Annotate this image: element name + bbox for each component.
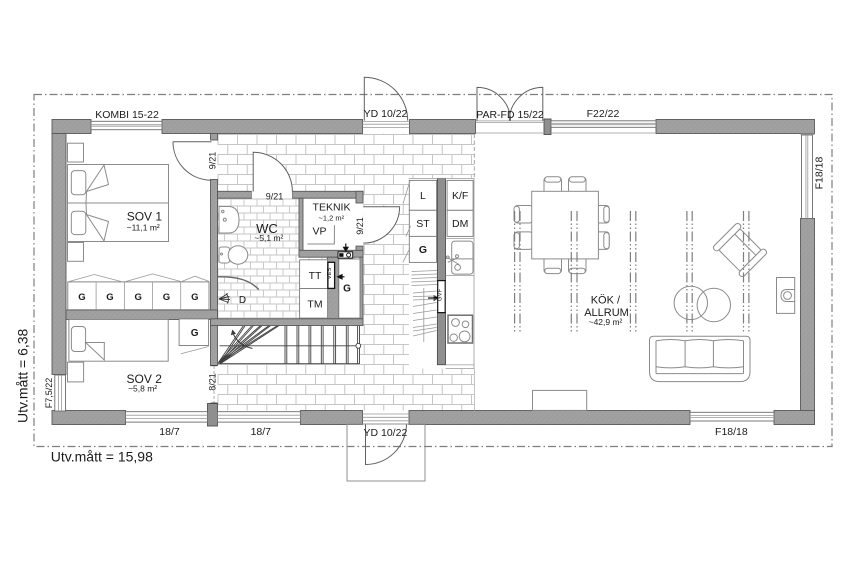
- svg-text:KOMBI 15-22: KOMBI 15-22: [95, 109, 159, 121]
- svg-text:YD 10/22: YD 10/22: [364, 108, 408, 120]
- svg-text:F18/18: F18/18: [814, 157, 826, 190]
- svg-text:PAR-FD 15/22: PAR-FD 15/22: [476, 109, 544, 121]
- svg-text:Utv.mått = 6,38: Utv.mått = 6,38: [15, 328, 31, 422]
- svg-text:VP: VP: [312, 226, 326, 238]
- svg-text:SOV 1: SOV 1: [127, 210, 163, 224]
- svg-text:Utv.mått = 15,98: Utv.mått = 15,98: [51, 449, 153, 465]
- svg-text:ST: ST: [416, 218, 430, 230]
- svg-text:~5,1 m²: ~5,1 m²: [254, 233, 283, 243]
- svg-text:D: D: [239, 295, 246, 306]
- svg-text:TM: TM: [307, 299, 322, 311]
- svg-text:8/21: 8/21: [208, 373, 218, 391]
- svg-text:G: G: [419, 244, 427, 256]
- svg-text:G: G: [163, 292, 170, 303]
- svg-text:TEKNIK: TEKNIK: [313, 202, 351, 214]
- svg-text:KÖK /: KÖK /: [591, 295, 621, 307]
- svg-text:TT: TT: [309, 270, 322, 282]
- svg-text:G: G: [191, 328, 199, 339]
- svg-text:9/21: 9/21: [208, 152, 218, 170]
- svg-text:L: L: [420, 190, 426, 202]
- svg-text:DM: DM: [452, 218, 468, 230]
- svg-text:G: G: [191, 292, 198, 303]
- svg-text:F18/18: F18/18: [715, 426, 748, 438]
- svg-text:G: G: [135, 292, 142, 303]
- svg-text:~42,9 m²: ~42,9 m²: [589, 317, 623, 327]
- svg-text:G: G: [106, 292, 113, 303]
- svg-text:9/21: 9/21: [266, 192, 284, 202]
- svg-text:18/7: 18/7: [251, 426, 272, 438]
- svg-text:VES: VES: [327, 267, 333, 279]
- svg-text:GVF: GVF: [438, 288, 444, 301]
- svg-text:F22/22: F22/22: [587, 108, 620, 120]
- svg-text:YD 10/22: YD 10/22: [364, 427, 408, 439]
- svg-text:G: G: [78, 292, 85, 303]
- svg-text:9/21: 9/21: [355, 217, 365, 235]
- svg-text:F7,5/22: F7,5/22: [44, 378, 54, 409]
- svg-text:~1,2 m²: ~1,2 m²: [318, 214, 344, 223]
- svg-text:~11,1 m²: ~11,1 m²: [127, 223, 160, 233]
- svg-text:K/F: K/F: [452, 190, 468, 202]
- svg-text:~5,8 m²: ~5,8 m²: [128, 383, 157, 393]
- svg-text:G: G: [343, 284, 351, 295]
- svg-text:18/7: 18/7: [159, 426, 180, 438]
